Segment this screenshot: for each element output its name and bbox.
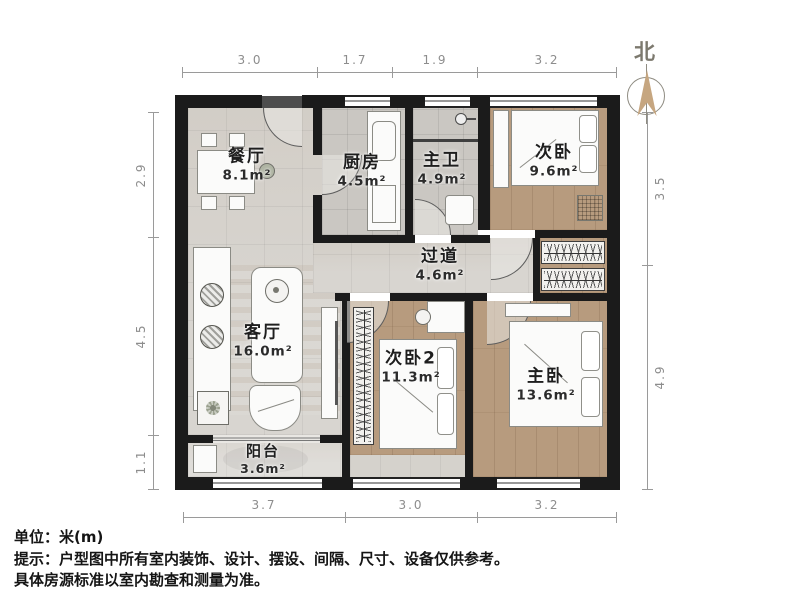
kitchen-window	[345, 95, 390, 108]
wall	[313, 235, 415, 243]
tick	[616, 67, 617, 78]
dim-left-3: 1.1	[134, 449, 148, 474]
dim-top-2: 1.7	[342, 53, 367, 67]
room-area: 3.6m²	[240, 461, 286, 476]
room-label-bedroom3: 次卧2 11.3m²	[381, 348, 440, 385]
room-name: 次卧	[530, 142, 579, 163]
tick	[392, 67, 393, 78]
tick	[642, 265, 653, 266]
pillow	[581, 331, 600, 371]
dim-bottom-1: 3.7	[251, 498, 276, 512]
wall	[535, 230, 607, 238]
room-label-balcony: 阳台 3.6m²	[240, 442, 286, 476]
plant-box	[197, 391, 229, 425]
tick	[616, 512, 617, 523]
wall	[533, 238, 540, 293]
room-area: 13.6m²	[516, 388, 575, 404]
footnotes: 单位：米(m) 提示：户型图中所有室内装饰、设计、摆设、间隔、尺寸、设备仅供参考…	[14, 527, 509, 592]
dim-left-1: 2.9	[134, 162, 148, 187]
room-area: 9.6m²	[530, 164, 579, 180]
tick	[317, 67, 318, 78]
bedroom3-bay-sill	[350, 455, 465, 477]
room-area: 11.3m²	[381, 370, 440, 386]
dining-chair	[229, 196, 245, 210]
wall	[313, 108, 322, 155]
wall	[405, 108, 413, 235]
balcony-window	[213, 477, 322, 490]
room-label-dining: 餐厅 8.1m²	[223, 146, 272, 183]
shower-partition	[413, 139, 478, 142]
wardrobe	[541, 241, 605, 264]
wall	[175, 95, 262, 108]
room-name: 阳台	[240, 442, 286, 461]
entrance-door-panel	[262, 96, 302, 108]
bedroom3-bay-window	[353, 477, 460, 490]
bedroom3-desk	[427, 301, 465, 333]
room-name: 餐厅	[223, 146, 272, 167]
pillow	[579, 115, 597, 143]
dim-top-4: 3.2	[534, 53, 559, 67]
room-label-living: 客厅 16.0m²	[233, 322, 292, 359]
dimension-line-top	[182, 72, 617, 73]
wall	[175, 477, 213, 490]
floorplan-canvas: 餐厅 8.1m² 厨房 4.5m² 主卫 4.9m² 次卧 9.6m² 过道 4…	[0, 0, 800, 600]
dim-bottom-3: 3.2	[534, 498, 559, 512]
tv-icon	[335, 321, 338, 405]
pillow	[579, 145, 597, 173]
dining-chair	[201, 133, 217, 147]
sofa-cushion	[200, 325, 224, 349]
wall	[580, 477, 620, 490]
wall	[465, 301, 473, 490]
pillow	[437, 393, 454, 435]
dimension-line-right	[647, 112, 648, 490]
tick	[148, 489, 159, 490]
wall	[175, 435, 213, 443]
desk-chair	[415, 309, 431, 325]
bedroom2-cabinet	[493, 110, 509, 188]
dim-bottom-2: 3.0	[398, 498, 423, 512]
wall	[533, 293, 620, 301]
room-label-master-bedroom: 主卧 13.6m²	[516, 366, 575, 403]
room-name: 过道	[416, 246, 465, 267]
room-area: 4.5m²	[338, 174, 387, 190]
note-unit: 单位：米(m)	[14, 527, 509, 549]
room-name: 客厅	[233, 322, 292, 343]
wardrobe	[541, 268, 605, 291]
dim-right-1: 3.5	[653, 175, 667, 200]
dimension-line-left	[153, 112, 154, 490]
tick	[148, 435, 159, 436]
room-area: 4.9m²	[418, 172, 467, 188]
wall	[302, 95, 345, 108]
dimension-line-bottom	[183, 517, 617, 518]
tick	[182, 67, 183, 78]
kitchen-stove	[372, 185, 396, 223]
tick	[642, 489, 653, 490]
tick	[148, 112, 159, 113]
room-area: 16.0m²	[233, 344, 292, 360]
room-area: 8.1m²	[223, 168, 272, 184]
shower-icon	[455, 113, 467, 125]
pillow	[581, 377, 600, 417]
master-dresser	[505, 303, 571, 317]
bedroom2-rug	[577, 195, 603, 221]
room-name: 厨房	[338, 152, 387, 173]
room-name: 主卧	[516, 366, 575, 387]
tick	[477, 512, 478, 523]
bath-sink	[445, 195, 474, 225]
dining-chair	[229, 133, 245, 147]
bedroom2-window	[490, 95, 597, 108]
wall	[470, 95, 490, 108]
room-label-kitchen: 厨房 4.5m²	[338, 152, 387, 189]
room-name: 主卫	[418, 150, 467, 171]
north-label: 北	[634, 36, 656, 66]
armchair	[249, 385, 301, 431]
master-bedroom-window	[497, 477, 580, 490]
bath-window	[425, 95, 470, 108]
sofa-cushion	[200, 283, 224, 307]
wall	[390, 95, 425, 108]
wall	[451, 235, 490, 243]
tick	[148, 237, 159, 238]
wall	[175, 95, 188, 490]
bedroom3-wardrobe	[353, 307, 374, 445]
room-label-hallway: 过道 4.6m²	[416, 246, 465, 283]
dim-left-2: 4.5	[134, 323, 148, 348]
table-decor-dot	[273, 287, 279, 293]
tick	[345, 512, 346, 523]
room-label-bedroom2: 次卧 9.6m²	[530, 142, 579, 179]
tick	[477, 67, 478, 78]
dim-top-3: 1.9	[422, 53, 447, 67]
washing-machine	[193, 445, 217, 473]
dim-right-2: 4.9	[653, 364, 667, 389]
room-name: 次卧2	[381, 348, 440, 369]
dining-chair	[201, 196, 217, 210]
wall	[478, 108, 490, 230]
wall	[390, 293, 487, 301]
note-standard: 具体房源标准以室内勘查和测量为准。	[14, 570, 509, 592]
room-area: 4.6m²	[416, 268, 465, 284]
floorplan: 餐厅 8.1m² 厨房 4.5m² 主卫 4.9m² 次卧 9.6m² 过道 4…	[175, 95, 620, 490]
note-tip: 提示：户型图中所有室内装饰、设计、摆设、间隔、尺寸、设备仅供参考。	[14, 549, 509, 571]
dim-top-1: 3.0	[237, 53, 262, 67]
wall	[320, 435, 350, 443]
room-label-master-bath: 主卫 4.9m²	[418, 150, 467, 187]
tick	[183, 512, 184, 523]
